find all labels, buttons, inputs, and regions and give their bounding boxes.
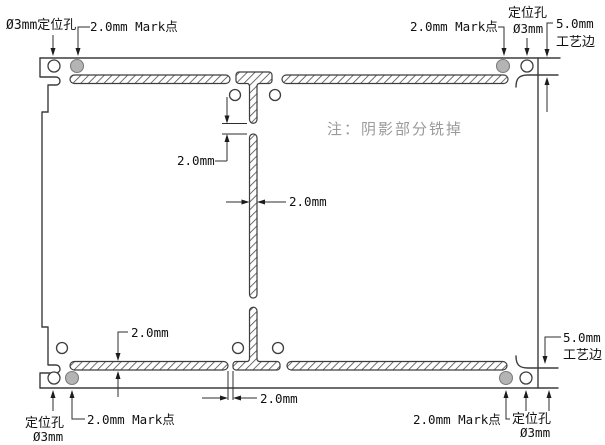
positioning-hole-bottom-left (48, 372, 60, 384)
dim-top-center-gap: 2.0mm (177, 153, 215, 168)
arrow-up-strip-height (116, 371, 121, 379)
top-left-milled-slot (70, 75, 230, 84)
board-hole-top-center-left (230, 90, 241, 101)
arrow-right-bottom-gap (220, 396, 228, 401)
center-vertical-milled-bar (250, 134, 258, 298)
label-top-right-hole-line2: Ø3mm (513, 21, 543, 36)
positioning-hole-bottom-right (520, 372, 532, 384)
bottom-left-milled-slot (70, 362, 228, 371)
board-hole-bottom-left (57, 343, 68, 354)
bottom-tee-milled-slot (233, 307, 280, 370)
board-hole-bottom-center-left (233, 343, 244, 354)
mark-point-top-right (497, 60, 510, 73)
dim-bottom-strip-height: 2.0mm (131, 325, 169, 340)
arrow-up-bottom-right-mark (504, 390, 509, 398)
arrow-down-top-right-hole (525, 48, 530, 56)
bottom-right-corner-relief (516, 356, 558, 368)
label-top-right-mark: 2.0mm Mark点 (410, 19, 498, 34)
arrow-down-strip-height (116, 353, 121, 361)
mark-point-bottom-left (66, 372, 79, 385)
pcb-panel-drawing: Ø3mm定位孔 2.0mm Mark点 2.0mm Mark点 定位孔 Ø3mm… (0, 0, 605, 445)
milling-note: 注：阴影部分铣掉 (327, 120, 463, 138)
top-tee-milled-slot (236, 72, 272, 123)
label-top-right-edge-line1: 5.0mm (556, 16, 594, 31)
label-top-right-edge-line2: 工艺边 (556, 35, 595, 50)
arrow-down-top-left-hole (51, 48, 56, 56)
arrow-up-top-gap (225, 134, 230, 142)
arrow-up-bottom-left-mark (70, 390, 75, 398)
label-bottom-right-edge-line1: 5.0mm (563, 330, 601, 345)
label-bottom-left-mark: 2.0mm Mark点 (87, 412, 175, 427)
panel-drawing-canvas: Ø3mm定位孔 2.0mm Mark点 2.0mm Mark点 定位孔 Ø3mm… (0, 0, 605, 445)
positioning-hole-top-right (521, 60, 533, 72)
label-bottom-right-hole-line2: Ø3mm (520, 425, 550, 440)
arrow-down-top-right-mark (502, 48, 507, 56)
arrow-left-bar-width (257, 200, 265, 205)
arrow-left-bottom-gap (233, 396, 241, 401)
arrow-down-top-left-mark (76, 48, 81, 56)
panel-left-edge-with-notches (40, 58, 60, 388)
label-top-left-mark: 2.0mm Mark点 (90, 19, 178, 34)
dim-bottom-center-gap: 2.0mm (260, 391, 298, 406)
board-hole-top-center-right (270, 90, 281, 101)
label-bottom-right-edge-line2: 工艺边 (563, 348, 602, 363)
label-top-left-hole: Ø3mm定位孔 (6, 18, 76, 33)
arrow-up-bottom-right-hole (524, 390, 529, 398)
arrow-up-bottom-left-hole (51, 390, 56, 398)
arrow-down-top-gap (225, 116, 230, 124)
label-bottom-right-mark: 2.0mm Mark点 (413, 412, 501, 427)
label-bottom-left-hole-line2: Ø3mm (33, 429, 63, 444)
board-hole-bottom-center-right (273, 343, 284, 354)
positioning-hole-top-left (48, 60, 60, 72)
arrow-up-top-right-rail (545, 77, 550, 85)
mark-point-bottom-right (500, 372, 513, 385)
arrow-up-bottom-right-rail (547, 390, 552, 398)
label-top-right-hole-line1: 定位孔 (508, 6, 547, 21)
bottom-right-milled-slot (287, 362, 507, 371)
arrow-down-top-right-rail (545, 49, 550, 57)
holes-and-marks (48, 60, 533, 385)
dim-center-bar-width: 2.0mm (289, 194, 327, 209)
top-right-corner-relief (516, 75, 558, 87)
arrow-down-bottom-right-rail (543, 356, 548, 364)
arrow-right-bar-width (242, 200, 250, 205)
mark-point-top-left (71, 60, 84, 73)
top-right-milled-slot (282, 75, 508, 84)
